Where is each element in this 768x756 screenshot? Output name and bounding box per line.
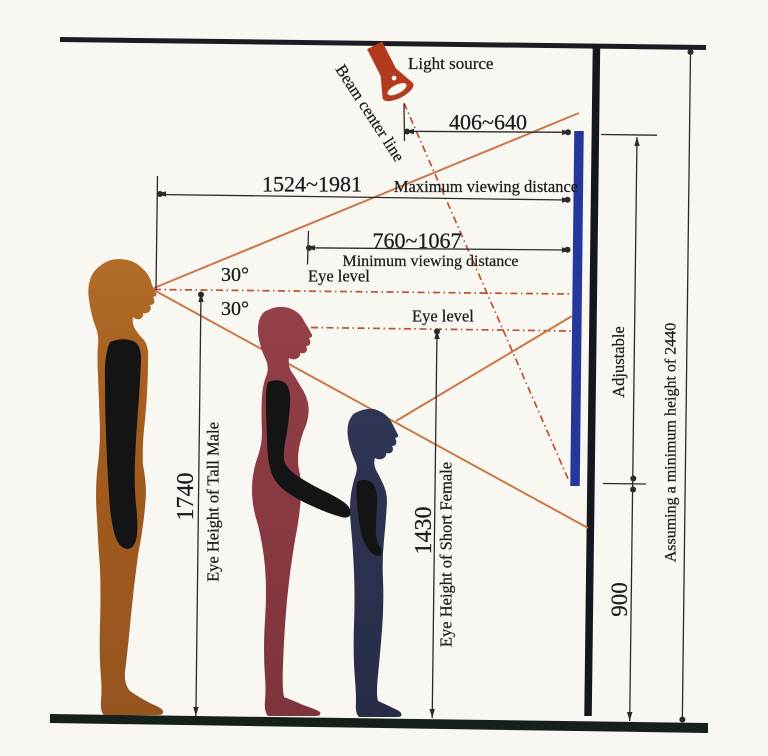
svg-text:30°: 30° bbox=[221, 298, 249, 320]
svg-text:30°: 30° bbox=[221, 264, 249, 286]
svg-text:Eye level: Eye level bbox=[308, 267, 370, 286]
svg-text:900: 900 bbox=[607, 582, 632, 617]
svg-text:1430: 1430 bbox=[411, 507, 437, 555]
svg-text:760~1067: 760~1067 bbox=[373, 228, 462, 253]
svg-text:1740: 1740 bbox=[173, 473, 199, 521]
svg-text:1524~1981: 1524~1981 bbox=[262, 172, 362, 197]
svg-text:Maximum viewing distance: Maximum viewing distance bbox=[394, 177, 578, 196]
svg-text:Eye Height of Tall Male: Eye Height of Tall Male bbox=[204, 422, 223, 582]
svg-text:Eye Height of Short Female: Eye Height of Short Female bbox=[437, 462, 456, 647]
svg-text:Eye level: Eye level bbox=[412, 307, 474, 326]
svg-text:406~640: 406~640 bbox=[449, 110, 527, 135]
svg-text:Light source: Light source bbox=[408, 54, 493, 73]
svg-text:Adjustable: Adjustable bbox=[609, 326, 628, 398]
svg-text:Assuming a minimum height of 2: Assuming a minimum height of 2440 bbox=[663, 323, 680, 563]
